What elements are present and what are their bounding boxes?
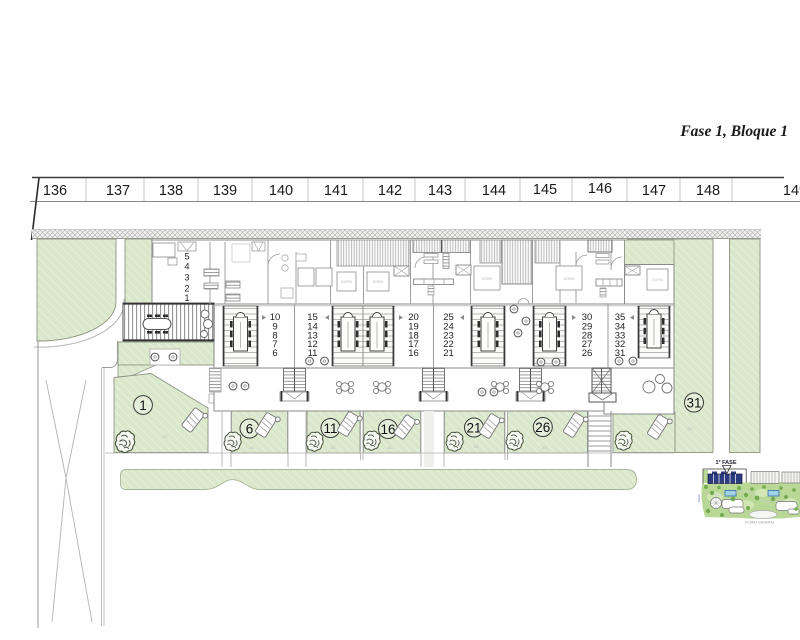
svg-text:138: 138 (159, 183, 183, 199)
svg-text:ZC: ZC (249, 445, 254, 450)
svg-text:6: 6 (272, 348, 277, 359)
svg-text:ZC: ZC (473, 444, 478, 449)
svg-text:31: 31 (686, 396, 701, 411)
svg-text:DORM: DORM (564, 277, 575, 281)
svg-text:DORM: DORM (341, 280, 352, 284)
svg-text:3: 3 (184, 272, 189, 282)
svg-text:Fase 1, Bloque 1: Fase 1, Bloque 1 (679, 123, 788, 140)
svg-text:142: 142 (378, 183, 402, 199)
svg-text:ZC: ZC (387, 445, 392, 450)
svg-text:AVDA.: AVDA. (697, 493, 701, 502)
svg-text:26: 26 (535, 420, 550, 435)
svg-text:DORM: DORM (652, 278, 663, 282)
svg-text:DORM: DORM (373, 280, 384, 284)
svg-text:PLANO GENERAL: PLANO GENERAL (745, 521, 775, 525)
svg-text:16: 16 (380, 422, 395, 437)
svg-text:143: 143 (428, 183, 452, 199)
svg-text:1ª FASE: 1ª FASE (716, 459, 737, 466)
svg-text:136: 136 (43, 183, 67, 199)
svg-text:11: 11 (323, 421, 337, 436)
svg-text:146: 146 (588, 181, 612, 197)
svg-text:6: 6 (246, 422, 254, 437)
svg-text:144: 144 (482, 183, 506, 199)
svg-text:147: 147 (642, 183, 666, 199)
svg-text:139: 139 (213, 183, 237, 199)
svg-text:16: 16 (408, 348, 419, 359)
svg-text:141: 141 (324, 183, 348, 199)
svg-text:1: 1 (184, 293, 189, 303)
svg-text:21: 21 (466, 421, 481, 436)
svg-text:ZC: ZC (162, 434, 167, 439)
svg-text:26: 26 (582, 348, 593, 359)
svg-text:4: 4 (184, 262, 189, 272)
svg-text:137: 137 (106, 183, 130, 199)
svg-text:DORM: DORM (482, 277, 493, 281)
svg-text:145: 145 (533, 182, 557, 198)
svg-text:1: 1 (139, 398, 147, 413)
svg-text:148: 148 (696, 183, 720, 199)
svg-text:ZC: ZC (330, 445, 335, 450)
svg-text:5: 5 (184, 251, 189, 261)
svg-text:21: 21 (443, 348, 454, 359)
svg-text:ZC: ZC (687, 426, 692, 431)
svg-text:ZC: ZC (542, 445, 547, 450)
svg-text:140: 140 (269, 183, 293, 199)
svg-text:149: 149 (783, 183, 800, 199)
